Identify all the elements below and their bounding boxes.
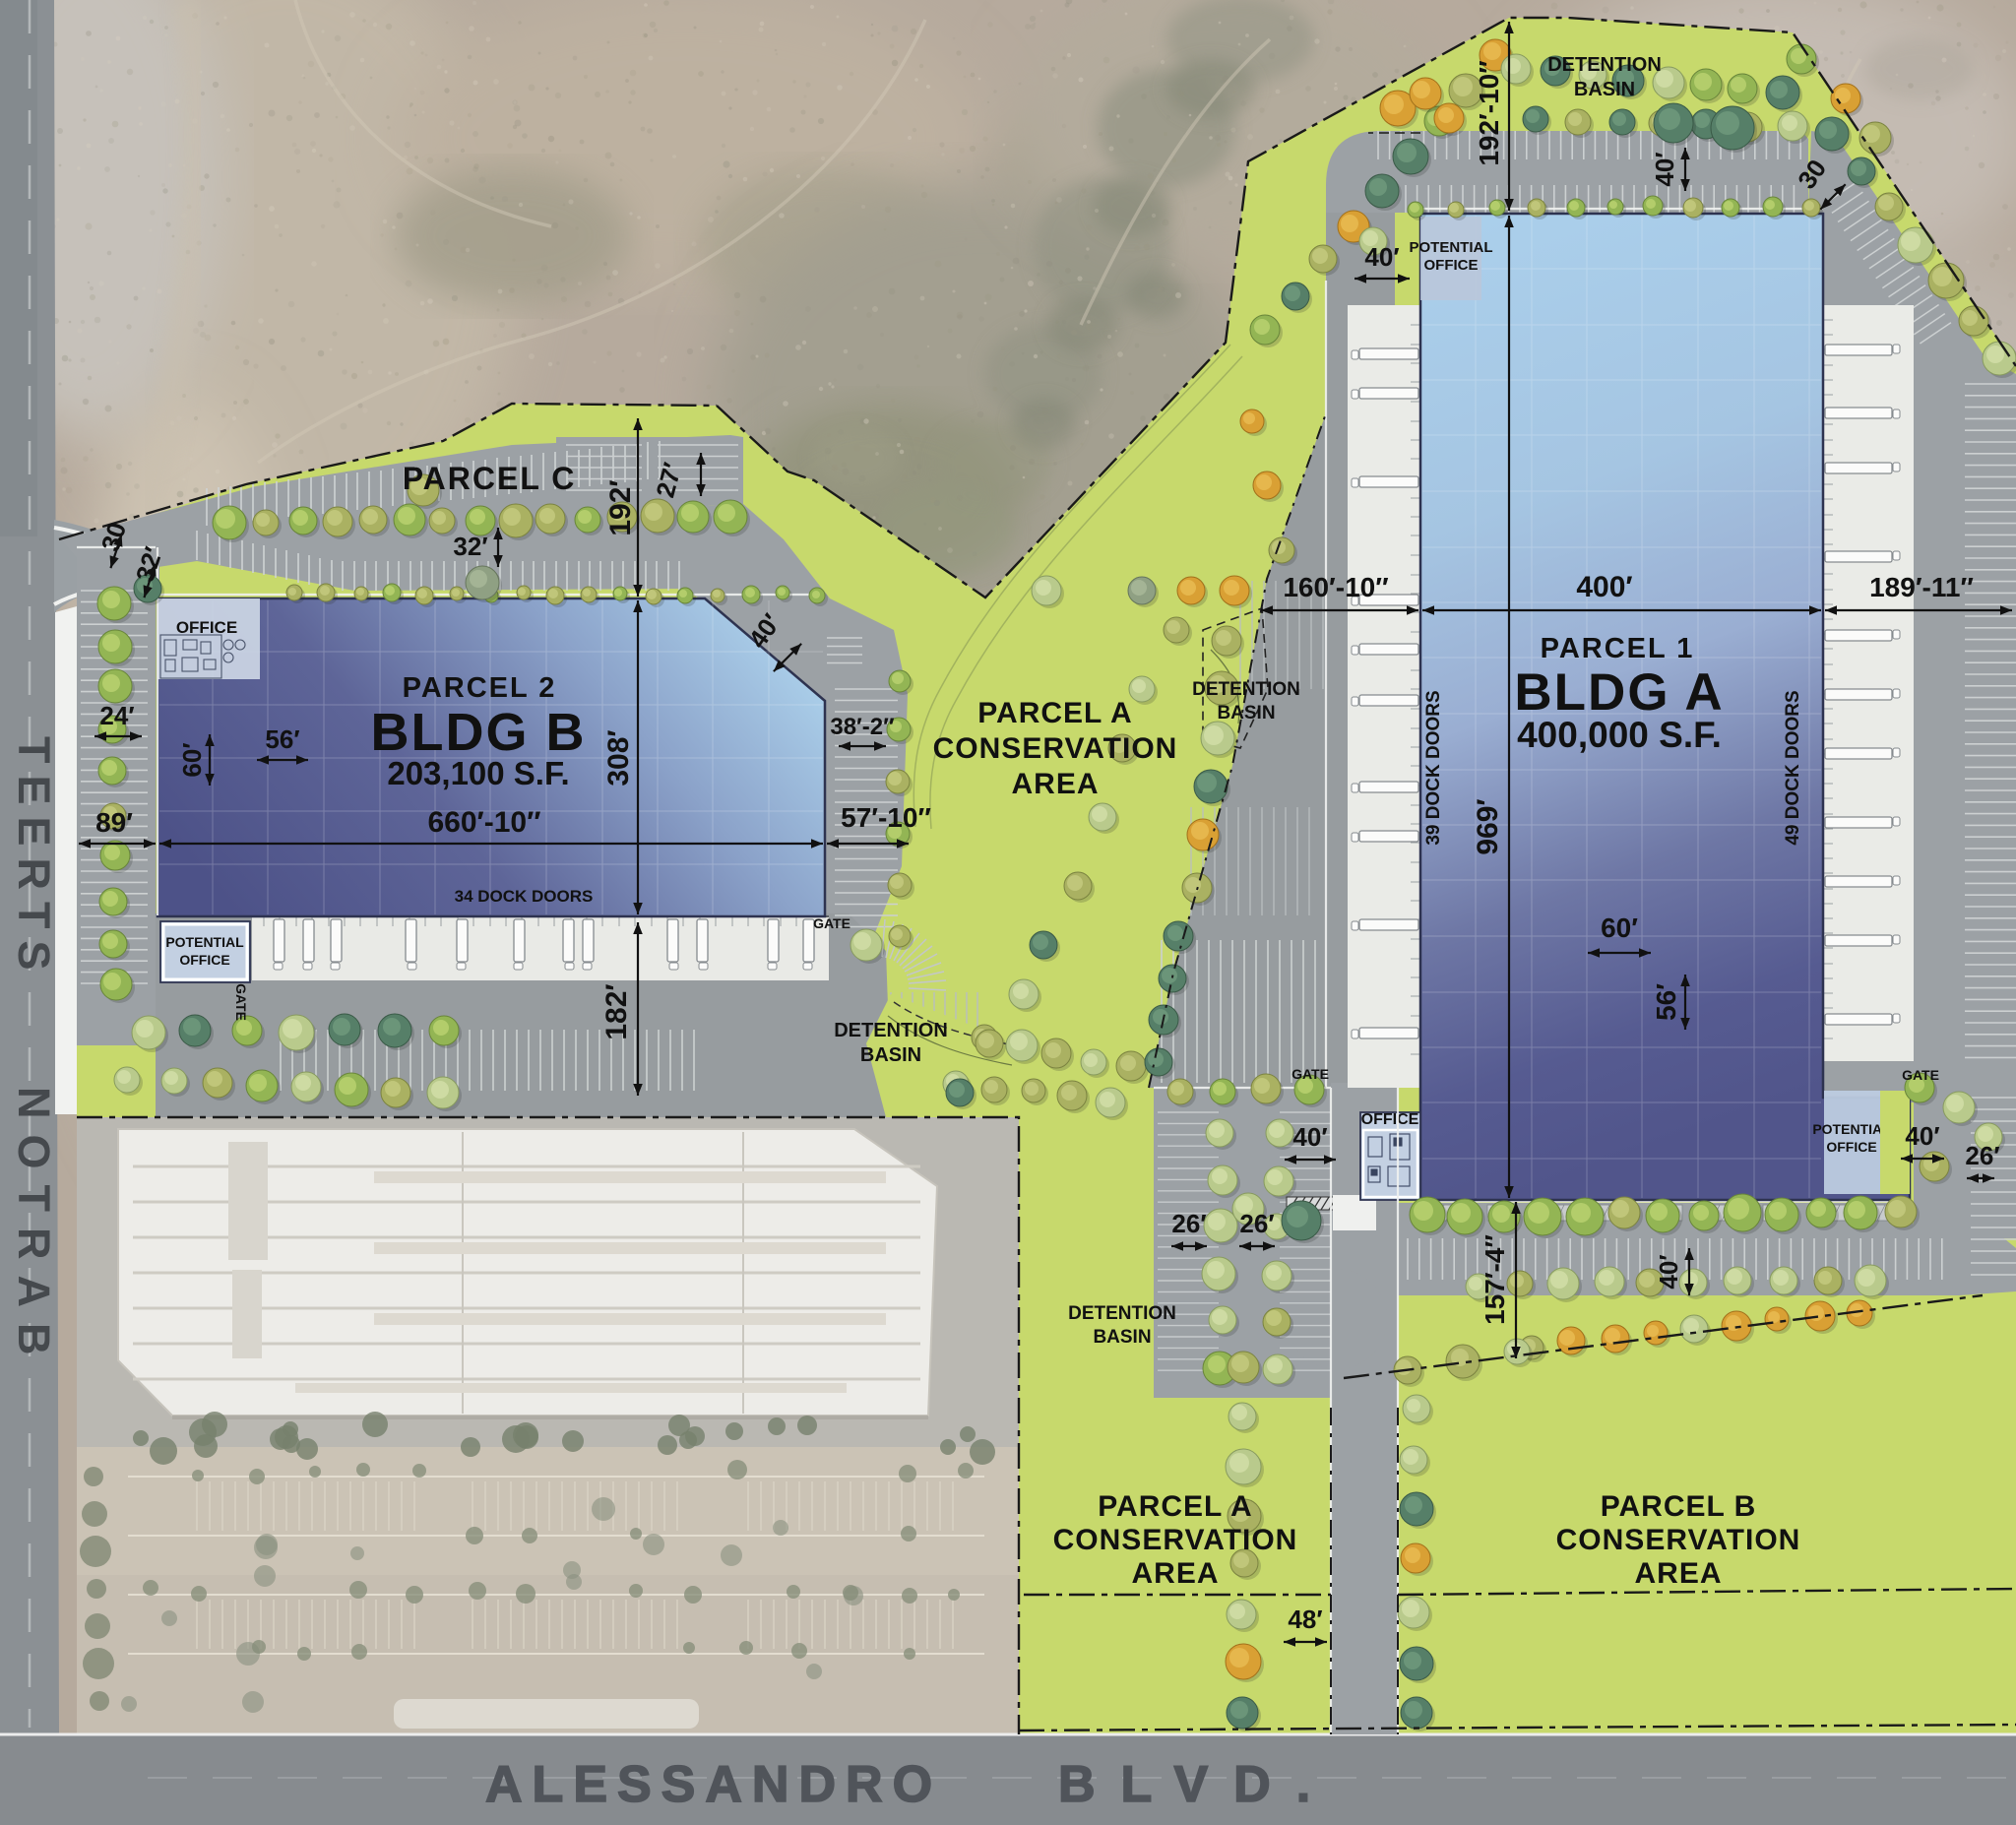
svg-text:POTENTIAL: POTENTIAL <box>165 934 244 950</box>
svg-text:GATE: GATE <box>1902 1067 1939 1083</box>
svg-text:38′-2″: 38′-2″ <box>830 714 895 740</box>
svg-text:DETENTION: DETENTION <box>1547 54 1662 76</box>
svg-text:BLDG B: BLDG B <box>371 703 587 762</box>
svg-text:AREA: AREA <box>1634 1557 1722 1590</box>
svg-text:PARCEL 2: PARCEL 2 <box>403 672 557 704</box>
svg-text:BASIN: BASIN <box>1574 79 1635 100</box>
svg-text:400′: 400′ <box>1576 571 1632 603</box>
svg-text:182′: 182′ <box>600 983 633 1039</box>
svg-text:400,000 S.F.: 400,000 S.F. <box>1517 715 1722 755</box>
svg-text:DETENTION: DETENTION <box>1192 679 1300 700</box>
svg-text:AREA: AREA <box>1011 768 1099 800</box>
svg-text:CONSERVATION: CONSERVATION <box>1556 1524 1801 1556</box>
svg-text:CONSERVATION: CONSERVATION <box>933 732 1178 765</box>
svg-text:160′-10″: 160′-10″ <box>1283 572 1388 602</box>
svg-text:GATE: GATE <box>1291 1066 1329 1082</box>
svg-text:BASIN: BASIN <box>1217 703 1275 724</box>
svg-text:32′: 32′ <box>453 532 487 561</box>
svg-text:PARCEL C: PARCEL C <box>403 461 577 496</box>
svg-text:DETENTION: DETENTION <box>1068 1303 1176 1324</box>
svg-text:BASIN: BASIN <box>860 1044 921 1066</box>
svg-text:TEERTS: TEERTS <box>9 736 59 982</box>
svg-text:57′-10″: 57′-10″ <box>841 802 931 833</box>
svg-text:PARCEL B: PARCEL B <box>1601 1490 1757 1523</box>
svg-text:AREA: AREA <box>1131 1557 1219 1590</box>
svg-text:NOTRAB: NOTRAB <box>9 1087 59 1370</box>
svg-text:BLVD.: BLVD. <box>1058 1756 1336 1813</box>
svg-text:157′-4″: 157′-4″ <box>1480 1234 1510 1325</box>
svg-text:189′-11″: 189′-11″ <box>1869 572 1974 602</box>
svg-text:26′: 26′ <box>1965 1141 1999 1170</box>
svg-text:49 DOCK DOORS: 49 DOCK DOORS <box>1783 690 1803 845</box>
svg-text:OFFICE: OFFICE <box>1826 1139 1876 1155</box>
svg-text:OFFICE: OFFICE <box>176 618 237 637</box>
svg-text:BLDG A: BLDG A <box>1514 663 1724 722</box>
svg-text:40′: 40′ <box>1905 1121 1939 1151</box>
svg-text:48′: 48′ <box>1288 1605 1322 1634</box>
svg-text:60′: 60′ <box>1601 912 1638 943</box>
svg-text:34 DOCK DOORS: 34 DOCK DOORS <box>455 887 594 906</box>
svg-text:PARCEL A: PARCEL A <box>977 697 1132 729</box>
svg-text:GATE: GATE <box>233 983 249 1021</box>
svg-text:DETENTION: DETENTION <box>834 1020 948 1041</box>
svg-text:BASIN: BASIN <box>1093 1327 1151 1348</box>
svg-text:OFFICE: OFFICE <box>1361 1111 1419 1128</box>
svg-text:308′: 308′ <box>602 729 635 786</box>
svg-text:56′: 56′ <box>265 724 299 754</box>
svg-text:26′: 26′ <box>1239 1209 1274 1238</box>
svg-text:40′: 40′ <box>1650 152 1679 186</box>
svg-text:ALESSANDRO: ALESSANDRO <box>485 1756 942 1813</box>
svg-text:660′-10″: 660′-10″ <box>428 806 541 839</box>
svg-text:969′: 969′ <box>1472 798 1504 854</box>
svg-text:60′: 60′ <box>177 742 207 777</box>
svg-text:192′: 192′ <box>604 479 637 535</box>
svg-text:GATE: GATE <box>813 915 850 931</box>
svg-text:39 DOCK DOORS: 39 DOCK DOORS <box>1423 690 1444 845</box>
svg-text:192′-10″: 192′-10″ <box>1474 60 1504 165</box>
svg-text:26′: 26′ <box>1171 1209 1206 1238</box>
svg-text:40′: 40′ <box>1654 1254 1683 1289</box>
svg-text:OFFICE: OFFICE <box>179 952 229 968</box>
svg-text:OFFICE: OFFICE <box>1424 257 1479 274</box>
svg-text:24′: 24′ <box>99 701 134 730</box>
svg-text:CONSERVATION: CONSERVATION <box>1053 1524 1298 1556</box>
svg-text:POTENTIAL: POTENTIAL <box>1812 1121 1891 1137</box>
svg-text:40′: 40′ <box>1364 242 1399 272</box>
svg-text:89′: 89′ <box>95 807 133 838</box>
svg-text:PARCEL 1: PARCEL 1 <box>1541 633 1695 664</box>
svg-text:PARCEL A: PARCEL A <box>1098 1490 1252 1523</box>
svg-text:POTENTIAL: POTENTIAL <box>1410 239 1493 256</box>
svg-text:40′: 40′ <box>1292 1122 1327 1152</box>
svg-text:56′: 56′ <box>1651 983 1681 1021</box>
svg-text:203,100 S.F.: 203,100 S.F. <box>387 755 569 791</box>
